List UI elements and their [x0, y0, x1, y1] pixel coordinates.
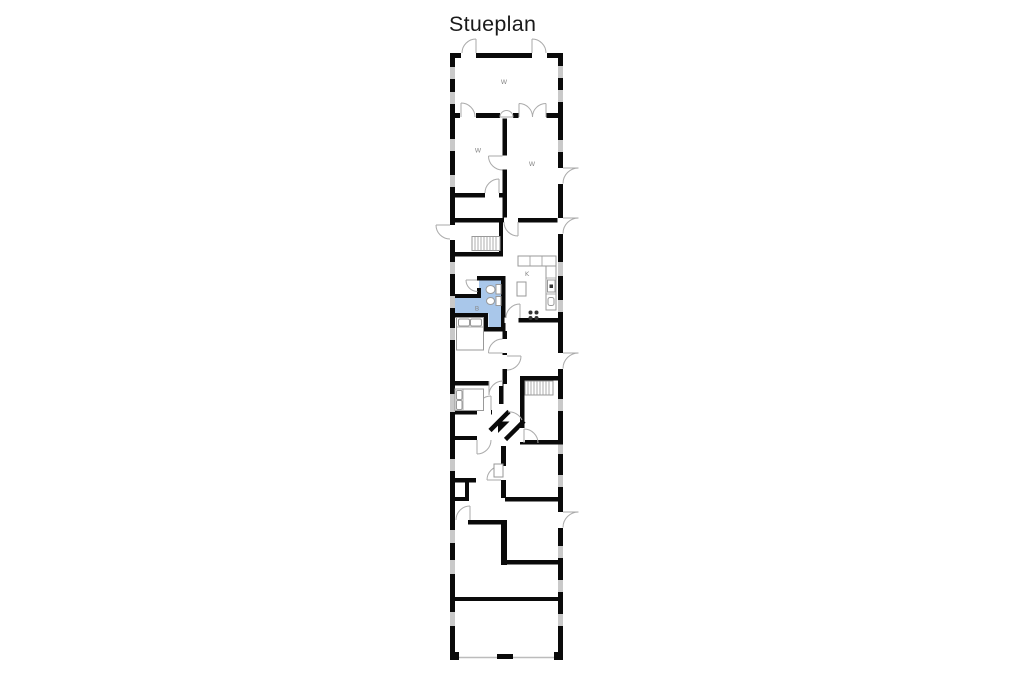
floorplan-svg: W W W K B: [0, 0, 1024, 682]
bed-1: [457, 318, 484, 351]
arched-opening: [500, 111, 513, 118]
room-label-bathroom: B: [475, 305, 479, 313]
hall-cabinet: [494, 464, 503, 477]
room-label-left: W: [475, 147, 482, 155]
stairs-upper: [472, 237, 500, 251]
bed-2: [455, 389, 484, 411]
room-label-kitchen: K: [525, 270, 530, 278]
room-label-storage-top: W: [501, 78, 508, 86]
stairs-lower: [525, 381, 553, 395]
kitchen-sink: [548, 298, 554, 306]
toilet: [486, 285, 501, 295]
room-label-right: W: [529, 160, 536, 168]
floorplan-page: Stueplan: [0, 0, 1024, 682]
wall-corner-fill: [498, 422, 510, 434]
kitchen-appliance: [548, 280, 556, 292]
kitchen-island: [517, 282, 526, 296]
